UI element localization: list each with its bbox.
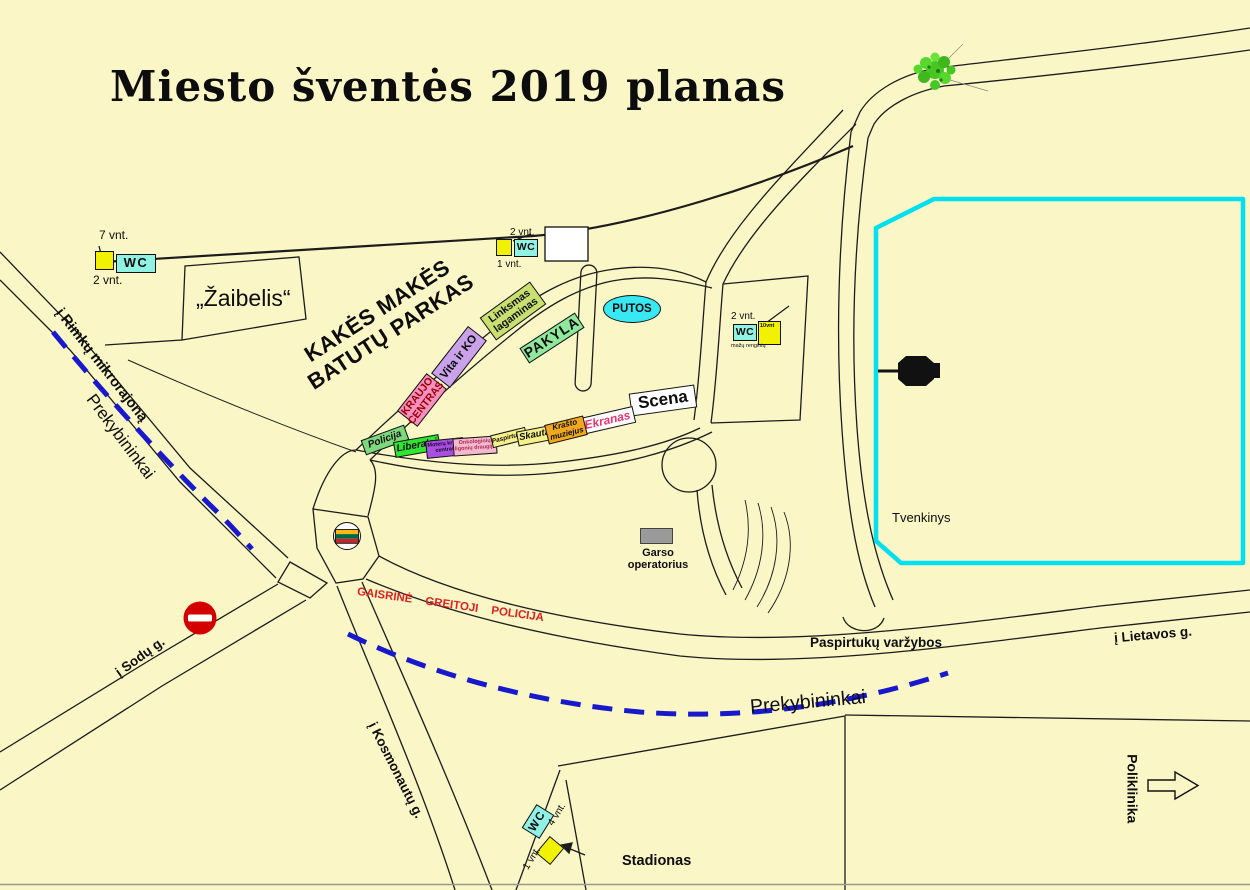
wc-nw-line-count: 7 vnt. (99, 229, 128, 242)
poliklinika-label: Poliklinika (1124, 747, 1139, 831)
zaibelis-label: „Žaibelis“ (196, 286, 291, 311)
roundabout-circle (662, 438, 716, 492)
lithuanian-flag-icon (334, 523, 361, 550)
empty-white-box (545, 227, 588, 261)
tree-icon (914, 44, 989, 91)
fence-line (103, 146, 853, 262)
sound-operator-label: Garso operatorius (608, 547, 708, 571)
paspirtuku-varzybos-label: Paspirtukų varžybos (810, 636, 942, 651)
wc-e-unit-box: 10vnt (758, 321, 781, 345)
tvenkinys-label: Tvenkinys (892, 511, 951, 525)
wc-e-note: mažų renginių (731, 343, 766, 349)
wc-n-count-bottom: 1 vnt. (497, 259, 521, 270)
wc-n-unit-box (496, 239, 512, 256)
stadium-boundary (558, 716, 845, 890)
wc-e-count-top: 2 vnt. (731, 311, 755, 322)
stadionas-label: Stadionas (622, 854, 691, 870)
venue-putos: PUTOS (603, 295, 661, 323)
wc-n-box: WC (514, 239, 538, 257)
wc-nw-count: 2 vnt. (93, 274, 122, 287)
wc-n-count-top: 2 vnt. (510, 227, 534, 238)
wc-e-box: WC (733, 324, 757, 341)
roads-network (0, 28, 1250, 890)
hydrant-icon (878, 356, 940, 386)
wc-nw-unit-box (95, 251, 114, 270)
sound-operator-box (640, 528, 673, 544)
poliklinika-arrow-icon (1148, 772, 1198, 799)
wc-nw-box: WC (116, 254, 156, 273)
vendor-route-left (53, 332, 252, 549)
festival-map: Miesto šventės 2019 planas „Žaibelis“ KA… (0, 0, 1250, 890)
no-entry-sign (184, 602, 217, 635)
map-canvas (0, 0, 1250, 890)
terrace-lines (733, 500, 790, 613)
page-title: Miesto šventės 2019 planas (110, 64, 786, 110)
